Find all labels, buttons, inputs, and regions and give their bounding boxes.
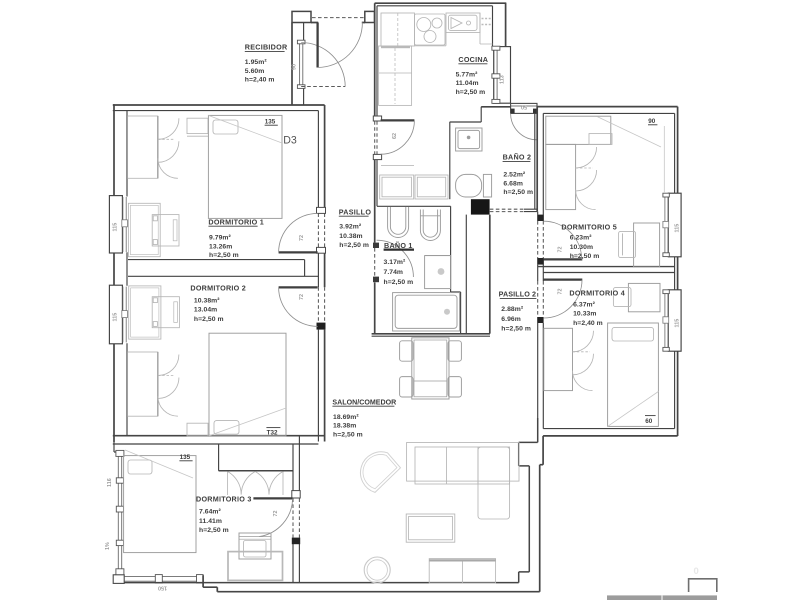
svg-text:DORMITORIO 4: DORMITORIO 4 bbox=[569, 288, 625, 297]
svg-text:h=2,50 m: h=2,50 m bbox=[456, 89, 486, 96]
svg-text:h=2,50 m: h=2,50 m bbox=[333, 431, 363, 438]
svg-text:11.04m: 11.04m bbox=[456, 80, 479, 87]
svg-text:135: 135 bbox=[180, 454, 191, 461]
svg-text:6.23m²: 6.23m² bbox=[570, 235, 593, 242]
svg-text:13.04m: 13.04m bbox=[194, 307, 217, 314]
svg-text:10.38m²: 10.38m² bbox=[194, 297, 220, 304]
svg-text:h=2,40 m: h=2,40 m bbox=[245, 77, 275, 84]
svg-text:3.17m²: 3.17m² bbox=[384, 259, 407, 266]
svg-text:D3: D3 bbox=[283, 134, 297, 146]
svg-text:5.60m: 5.60m bbox=[245, 68, 265, 75]
svg-text:10.30m: 10.30m bbox=[570, 244, 593, 251]
svg-text:BAÑO 2: BAÑO 2 bbox=[503, 153, 532, 162]
svg-text:9.79m²: 9.79m² bbox=[209, 235, 232, 242]
svg-text:DORMITORIO 3: DORMITORIO 3 bbox=[196, 494, 252, 503]
svg-text:COCINA: COCINA bbox=[458, 55, 488, 64]
svg-text:62: 62 bbox=[392, 133, 398, 139]
svg-text:18.69m²: 18.69m² bbox=[333, 414, 359, 421]
svg-text:h=2,50 m: h=2,50 m bbox=[384, 279, 414, 286]
svg-text:115: 115 bbox=[675, 319, 681, 328]
svg-text:BAÑO 1: BAÑO 1 bbox=[384, 241, 413, 250]
svg-text:90: 90 bbox=[291, 64, 297, 70]
svg-text:7.64m²: 7.64m² bbox=[199, 509, 222, 516]
svg-text:90: 90 bbox=[648, 118, 656, 125]
svg-text:SALON/COMEDOR: SALON/COMEDOR bbox=[332, 398, 396, 406]
svg-text:5.77m²: 5.77m² bbox=[456, 71, 479, 78]
svg-text:h=2,50 m: h=2,50 m bbox=[199, 527, 229, 534]
svg-text:6.68m: 6.68m bbox=[503, 180, 523, 187]
svg-text:72: 72 bbox=[273, 511, 279, 517]
svg-text:h=2,50 m: h=2,50 m bbox=[503, 189, 533, 196]
svg-text:10.38m: 10.38m bbox=[339, 233, 362, 240]
svg-text:1%: 1% bbox=[105, 542, 111, 550]
svg-text:2.52m²: 2.52m² bbox=[503, 172, 526, 179]
svg-text:13.26m: 13.26m bbox=[209, 243, 232, 250]
svg-text:72: 72 bbox=[558, 289, 564, 295]
svg-text:RECIBIDOR: RECIBIDOR bbox=[245, 43, 288, 52]
svg-text:DORMITORIO 1: DORMITORIO 1 bbox=[208, 217, 264, 226]
svg-text:3.92m²: 3.92m² bbox=[339, 224, 362, 231]
svg-text:DORMITORIO 5: DORMITORIO 5 bbox=[561, 222, 617, 231]
svg-text:h=2,50 m: h=2,50 m bbox=[570, 253, 600, 260]
svg-text:115: 115 bbox=[113, 223, 119, 232]
svg-text:PASILLO 2: PASILLO 2 bbox=[499, 290, 537, 299]
svg-text:h=2,50 m: h=2,50 m bbox=[209, 252, 239, 259]
svg-text:h=2,40 m: h=2,40 m bbox=[573, 320, 603, 327]
svg-text:11.41m: 11.41m bbox=[199, 518, 222, 525]
svg-text:116: 116 bbox=[107, 478, 113, 487]
svg-text:72: 72 bbox=[558, 247, 564, 253]
svg-text:10.33m: 10.33m bbox=[573, 311, 596, 318]
svg-text:113: 113 bbox=[500, 75, 506, 84]
svg-text:72: 72 bbox=[299, 294, 305, 300]
svg-text:135: 135 bbox=[265, 118, 276, 125]
svg-text:h=2,50 m: h=2,50 m bbox=[501, 325, 531, 332]
svg-text:115: 115 bbox=[675, 224, 681, 233]
svg-text:50: 50 bbox=[521, 104, 527, 110]
svg-text:115: 115 bbox=[113, 313, 119, 322]
svg-text:T32: T32 bbox=[267, 430, 278, 437]
svg-text:72: 72 bbox=[299, 235, 305, 241]
svg-text:2.88m²: 2.88m² bbox=[501, 306, 524, 313]
svg-text:7.74m: 7.74m bbox=[384, 269, 404, 276]
svg-text:6.37m²: 6.37m² bbox=[573, 301, 596, 308]
svg-text:60: 60 bbox=[645, 418, 653, 425]
svg-text:0: 0 bbox=[694, 566, 699, 577]
svg-text:DORMITORIO 2: DORMITORIO 2 bbox=[190, 284, 246, 293]
svg-text:1.95m²: 1.95m² bbox=[245, 59, 268, 66]
svg-text:PASILLO: PASILLO bbox=[339, 207, 372, 216]
svg-text:6.96m: 6.96m bbox=[501, 316, 521, 323]
svg-text:18.38m: 18.38m bbox=[333, 423, 356, 430]
svg-text:150: 150 bbox=[158, 585, 167, 591]
svg-text:h=2,50 m: h=2,50 m bbox=[194, 316, 224, 323]
svg-text:h=2,50 m: h=2,50 m bbox=[339, 242, 369, 249]
